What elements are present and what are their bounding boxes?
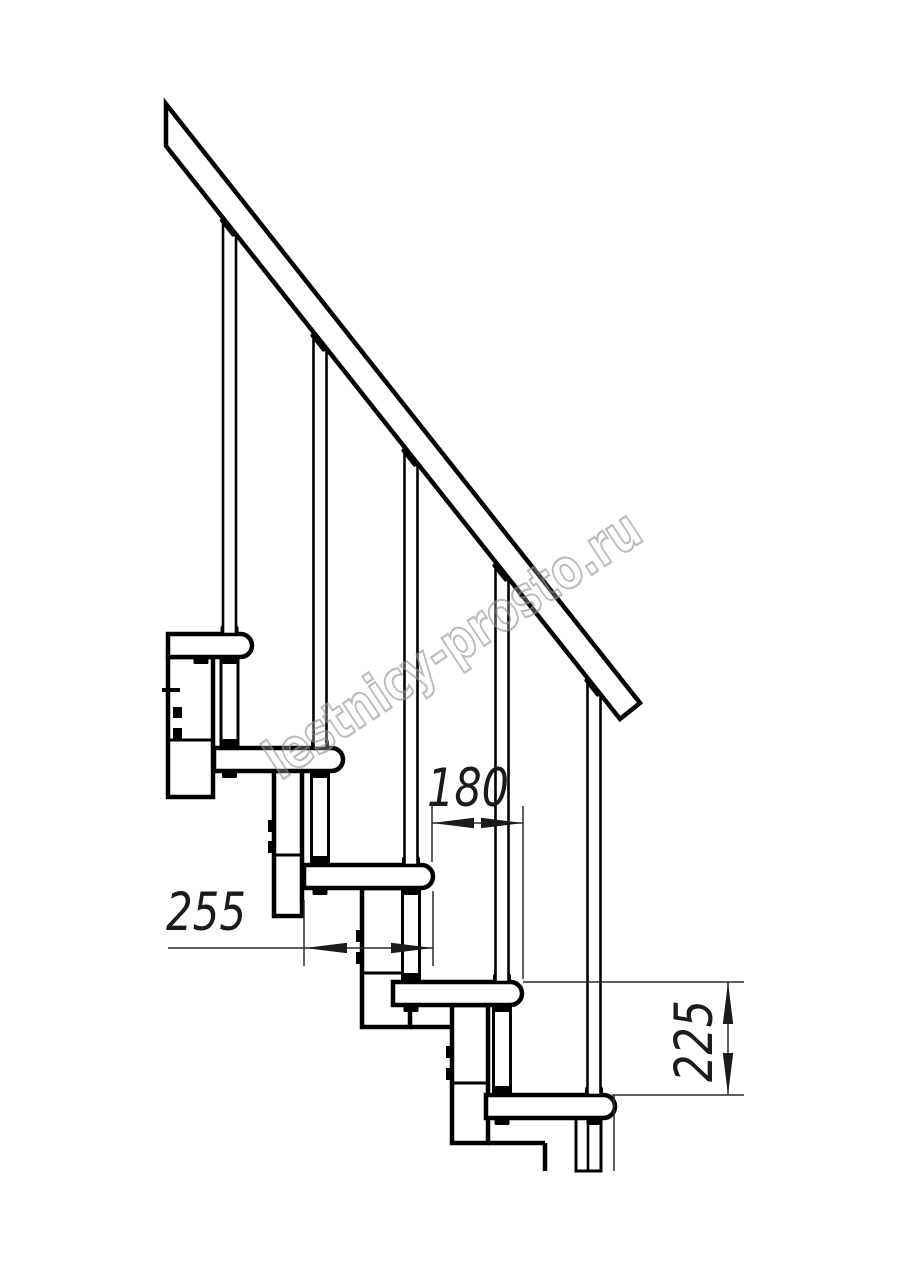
bolt-icon [268, 841, 276, 853]
clamp-nub-icon [313, 887, 328, 895]
bolt-icon [356, 930, 364, 942]
mount-blob-icon [493, 1086, 511, 1096]
bolt-icon [173, 728, 182, 739]
vertical-tube-2 [312, 771, 329, 865]
clamp-nub-icon [495, 1004, 510, 1012]
tread-5 [486, 1095, 615, 1118]
support-box-body [452, 1005, 488, 1143]
vertical-tube-4 [494, 1005, 511, 1095]
clamp-nub-icon [495, 1117, 510, 1125]
clamp-nub-icon [222, 656, 237, 664]
clamp-nub-icon [194, 656, 209, 664]
dimension-label: 180 [427, 758, 509, 819]
mount-blob-icon [402, 973, 420, 983]
baluster-2 [314, 340, 327, 748]
tread-4 [393, 982, 522, 1005]
bolt-icon [173, 707, 182, 718]
bolt-icon [446, 1068, 454, 1080]
clamp-nub-icon [404, 1004, 419, 1012]
mount-blob-icon [311, 856, 329, 866]
tread-1 [168, 634, 252, 657]
bolt-tick-icon [162, 688, 180, 692]
stair-technical-drawing: 180255225lestnicy-prosto.ru [0, 0, 914, 1280]
support-box-body [274, 770, 302, 916]
bolt-icon [446, 1046, 454, 1058]
vertical-tube-3 [403, 888, 420, 982]
support-box-2 [268, 770, 302, 916]
dimension-label: 225 [664, 1000, 725, 1082]
mount-blob-icon [221, 739, 239, 749]
clamp-nub-icon [404, 887, 419, 895]
stair-drawing-page: 180255225lestnicy-prosto.ru [0, 0, 914, 1280]
tread-3 [304, 865, 433, 888]
clamp-nub-icon [587, 1117, 602, 1125]
support-box-body [168, 657, 213, 797]
baluster-1 [223, 225, 236, 634]
support-box-1 [168, 657, 213, 797]
clamp-nub-icon [222, 770, 237, 778]
dimension-label: 255 [166, 882, 246, 943]
bolt-icon [268, 820, 276, 832]
baluster-5 [588, 685, 601, 1095]
vertical-tube-1 [221, 657, 238, 748]
bolt-icon [356, 952, 364, 964]
